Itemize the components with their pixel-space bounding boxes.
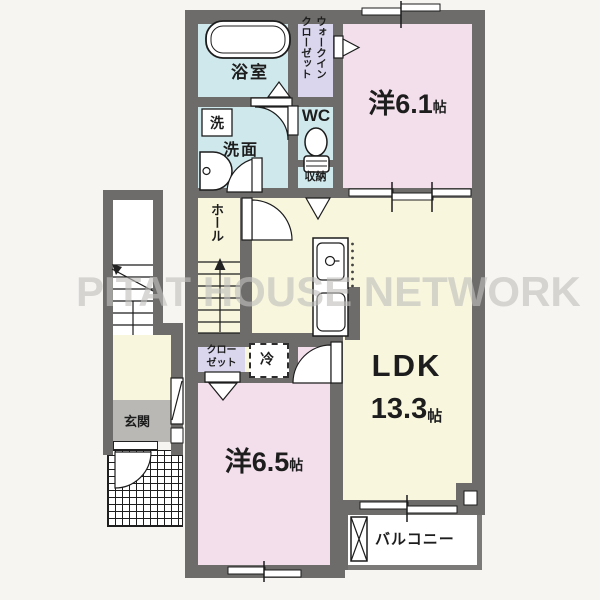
walkin-closet-label-col1: ウォークイン	[314, 16, 329, 96]
balcony-hatch-box	[351, 517, 367, 561]
wc-label: WC	[300, 106, 332, 126]
refrigerator-label: 冷	[249, 343, 285, 374]
porch-door-swing	[115, 452, 151, 488]
watermark: PITAT HOUSE NETWORK	[76, 268, 581, 316]
sliding-door-6-1-ldk	[349, 182, 471, 212]
hall-door	[242, 198, 292, 240]
walkin-closet-door	[334, 36, 359, 58]
washer-label: 洗	[202, 109, 232, 136]
window-ldk-balcony	[360, 495, 457, 522]
balcony-label: バルコニー	[375, 528, 455, 549]
closet-label: クロー ゼット	[199, 344, 244, 370]
ldk-size-label: 13.3帖	[343, 393, 470, 426]
western-6-5-name: 洋6.5	[225, 440, 290, 479]
western-6-5-unit: 帖	[289, 455, 303, 475]
hall-label-text: ホール	[207, 203, 226, 265]
closet-label-line1: クロー	[199, 344, 244, 357]
western-6-1-name: 洋6.1	[368, 82, 433, 121]
bath-label: 浴室	[218, 58, 282, 83]
shuno-label: 収納	[298, 168, 333, 184]
senmen-door	[227, 158, 262, 192]
toilet	[304, 128, 329, 172]
western-6-5-label: 洋6.5帖	[198, 440, 330, 479]
entrance-door	[171, 378, 183, 443]
floor-plan: 浴室 ウォークイン クローゼット 洋6.1帖 洗 洗面 WC 収納 ホール クロ…	[0, 0, 600, 600]
genkan-label: 玄関	[112, 411, 162, 430]
walkin-closet-label: ウォークイン クローゼット	[299, 16, 329, 96]
hall-label: ホール	[207, 203, 226, 265]
ldk-size-unit: 帖	[427, 405, 442, 426]
pipe-space	[464, 491, 477, 505]
bath-folding-door	[251, 82, 292, 106]
closet-folding-door	[205, 372, 240, 400]
walkin-closet-label-col2: クローゼット	[299, 16, 314, 96]
western-6-1-unit: 帖	[433, 97, 447, 117]
ldk-size-value: 13.3	[371, 393, 427, 426]
wc-door	[255, 106, 298, 140]
shuno-folding-door	[306, 198, 330, 219]
window-6-5-bottom	[228, 561, 301, 582]
bathtub	[206, 21, 290, 58]
senmen-label: 洗面	[208, 136, 274, 160]
closet-label-line2: ゼット	[199, 357, 244, 370]
window-top	[362, 1, 440, 28]
ldk-bedroom-door	[293, 342, 342, 383]
western-6-1-label: 洋6.1帖	[343, 82, 472, 121]
ldk-name-label: LDK	[343, 348, 470, 384]
